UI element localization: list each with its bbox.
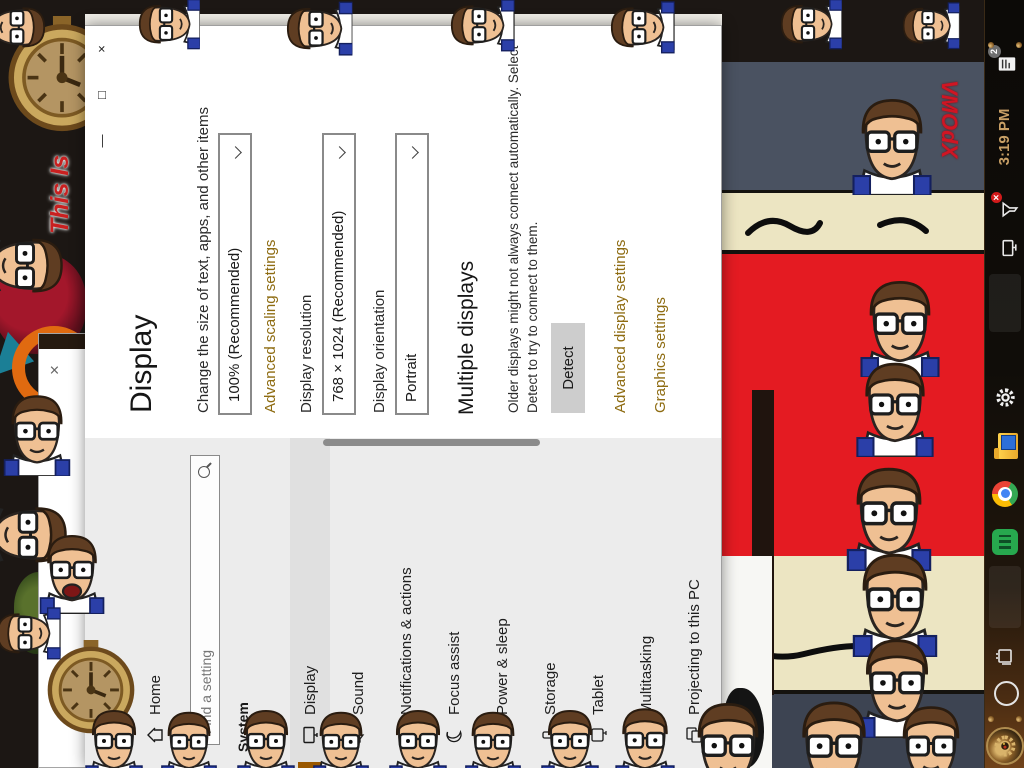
hank-head-icon <box>82 702 146 768</box>
hank-head-icon <box>0 604 60 662</box>
hank-head-icon <box>0 386 74 476</box>
hank-head-icon <box>158 704 220 768</box>
hank-head-icon <box>684 692 772 768</box>
hank-head-icon <box>788 690 880 768</box>
hank-head-icon <box>444 0 515 54</box>
hank-head-icon <box>462 704 524 768</box>
hank-head-icon <box>386 702 450 768</box>
hank-head-icon <box>774 0 842 52</box>
hank-head-icon <box>890 696 972 768</box>
hank-head-icon <box>612 700 678 768</box>
hank-head-icon <box>279 0 352 59</box>
screen: This Is VMOdX <box>0 0 1024 768</box>
wallpaper-heads-over <box>0 0 1024 768</box>
hank-head-icon <box>604 0 675 56</box>
hank-head-icon <box>36 526 108 614</box>
hank-head-icon <box>310 704 372 768</box>
hank-head-icon <box>234 702 298 768</box>
hank-head-icon <box>0 227 73 305</box>
hank-head-icon <box>0 0 52 56</box>
hank-head-icon <box>132 0 200 52</box>
hank-head-icon <box>538 702 602 768</box>
hank-head-icon <box>896 0 959 52</box>
